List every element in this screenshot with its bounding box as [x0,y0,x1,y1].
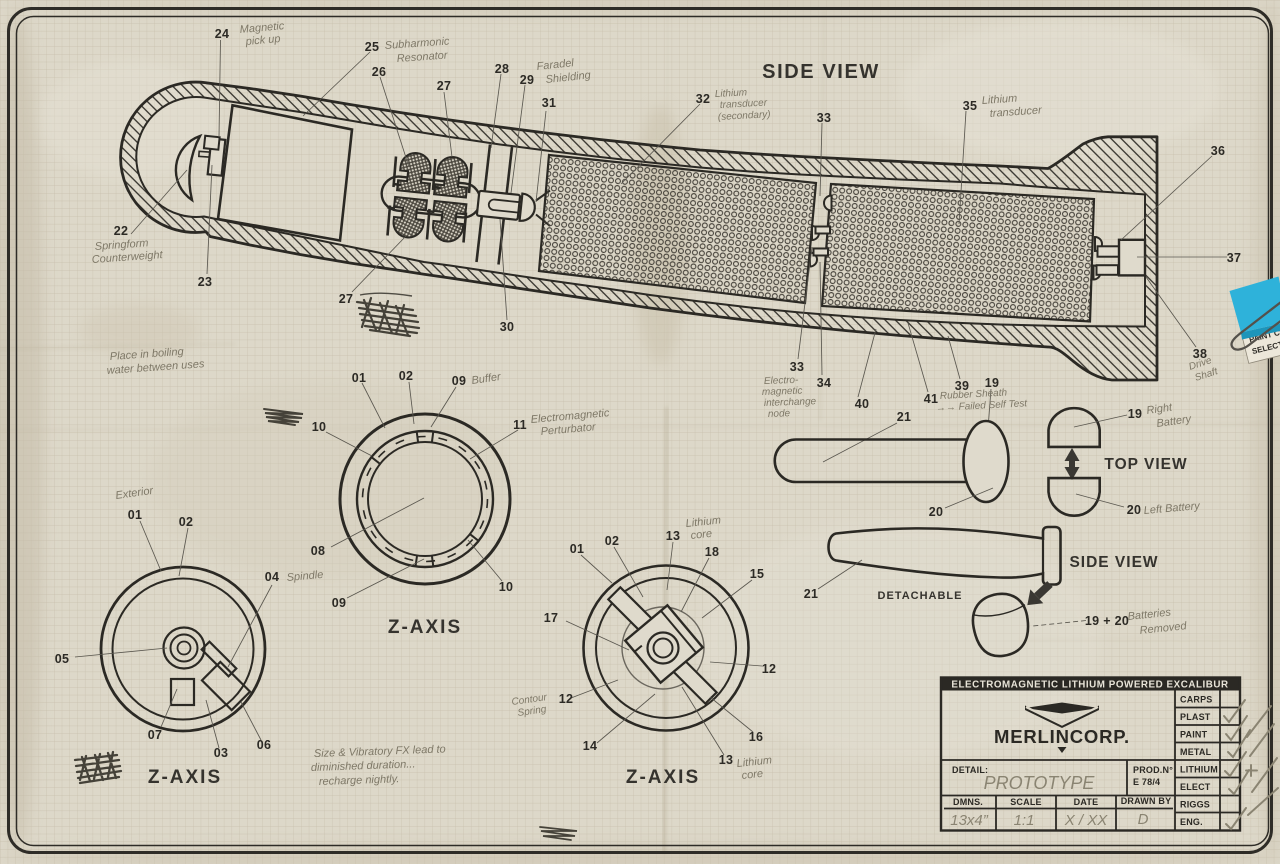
svg-text:35: 35 [963,99,978,113]
svg-text:LITHIUM: LITHIUM [1180,765,1218,775]
svg-text:ELECT: ELECT [1180,782,1211,792]
svg-text:22: 22 [114,224,129,238]
svg-text:36: 36 [1211,144,1226,158]
svg-text:PLAST: PLAST [1180,712,1211,722]
svg-text:09: 09 [452,374,467,388]
svg-text:20: 20 [929,505,944,519]
svg-text:SIDE VIEW: SIDE VIEW [762,61,880,83]
svg-text:X / XX: X / XX [1064,812,1109,829]
svg-text:core: core [741,768,764,782]
svg-text:Z-AXIS: Z-AXIS [388,617,462,638]
svg-text:PROTOTYPE: PROTOTYPE [984,773,1096,793]
svg-text:20: 20 [1127,503,1142,517]
svg-text:DMNS.: DMNS. [953,797,983,807]
svg-text:02: 02 [179,515,194,529]
svg-text:27: 27 [437,79,452,93]
svg-text:PAINT: PAINT [1180,730,1208,740]
svg-text:02: 02 [605,534,620,548]
svg-text:01: 01 [128,508,143,522]
svg-text:33: 33 [790,360,805,374]
svg-text:19 + 20: 19 + 20 [1085,614,1129,628]
svg-text:04: 04 [265,570,280,584]
svg-text:DETACHABLE: DETACHABLE [878,590,963,602]
svg-text:37: 37 [1227,251,1242,265]
svg-text:27: 27 [339,292,354,306]
svg-text:31: 31 [542,96,557,110]
svg-text:32: 32 [696,92,711,106]
svg-text:28: 28 [495,62,510,76]
svg-text:18: 18 [705,545,720,559]
svg-text:23: 23 [198,275,213,289]
svg-text:ENG.: ENG. [1180,817,1203,827]
svg-text:Z-AXIS: Z-AXIS [626,767,700,788]
svg-text:13: 13 [719,753,734,767]
svg-text:01: 01 [570,542,585,556]
svg-text:01: 01 [352,371,367,385]
svg-text:21: 21 [897,410,912,424]
svg-text:core: core [690,528,713,542]
svg-text:17: 17 [544,611,559,625]
svg-text:ELECTROMAGNETIC LITHIUM POWERE: ELECTROMAGNETIC LITHIUM POWERED EXCALIBU… [951,680,1228,691]
svg-text:25: 25 [365,40,380,54]
svg-text:07: 07 [148,728,163,742]
svg-text:13: 13 [666,529,681,543]
svg-text:13x4”: 13x4” [950,812,989,829]
svg-text:03: 03 [214,746,229,760]
svg-text:12: 12 [559,692,574,706]
svg-text:40: 40 [855,397,870,411]
svg-text:RIGGS: RIGGS [1180,800,1210,810]
svg-text:19: 19 [1128,407,1143,421]
svg-text:33: 33 [817,111,832,125]
svg-text:21: 21 [804,587,819,601]
svg-text:CARPS: CARPS [1180,695,1213,705]
svg-text:02: 02 [399,369,414,383]
svg-text:08: 08 [311,544,326,558]
svg-text:10: 10 [499,580,514,594]
svg-text:11: 11 [513,418,527,432]
svg-text:29: 29 [520,73,535,87]
svg-text:09: 09 [332,596,347,610]
svg-text:DRAWN BY: DRAWN BY [1121,796,1172,806]
svg-text:SIDE VIEW: SIDE VIEW [1069,554,1158,571]
svg-text:SCALE: SCALE [1010,797,1042,807]
svg-text:06: 06 [257,738,272,752]
svg-text:16: 16 [749,730,764,744]
svg-text:Lithium: Lithium [981,93,1017,107]
svg-text:METAL: METAL [1180,747,1212,757]
svg-text:15: 15 [750,567,765,581]
svg-text:DATE: DATE [1074,797,1099,807]
svg-text:D: D [1138,811,1149,828]
svg-text:12: 12 [762,662,777,676]
svg-text:TOP VIEW: TOP VIEW [1104,456,1187,473]
svg-text:1:1: 1:1 [1014,812,1035,829]
svg-text:E 78/4: E 78/4 [1133,777,1160,787]
svg-text:05: 05 [55,652,70,666]
svg-text:30: 30 [500,320,515,334]
svg-text:14: 14 [583,739,598,753]
svg-text:10: 10 [312,420,327,434]
svg-text:26: 26 [372,65,387,79]
svg-text:interchange: interchange [764,396,817,409]
svg-text:MERLINCORP.: MERLINCORP. [994,726,1130,747]
svg-text:node: node [768,408,791,420]
svg-text:PROD.N°: PROD.N° [1133,765,1173,775]
svg-text:34: 34 [817,376,832,390]
svg-text:24: 24 [215,27,230,41]
svg-text:Z-AXIS: Z-AXIS [148,767,222,788]
